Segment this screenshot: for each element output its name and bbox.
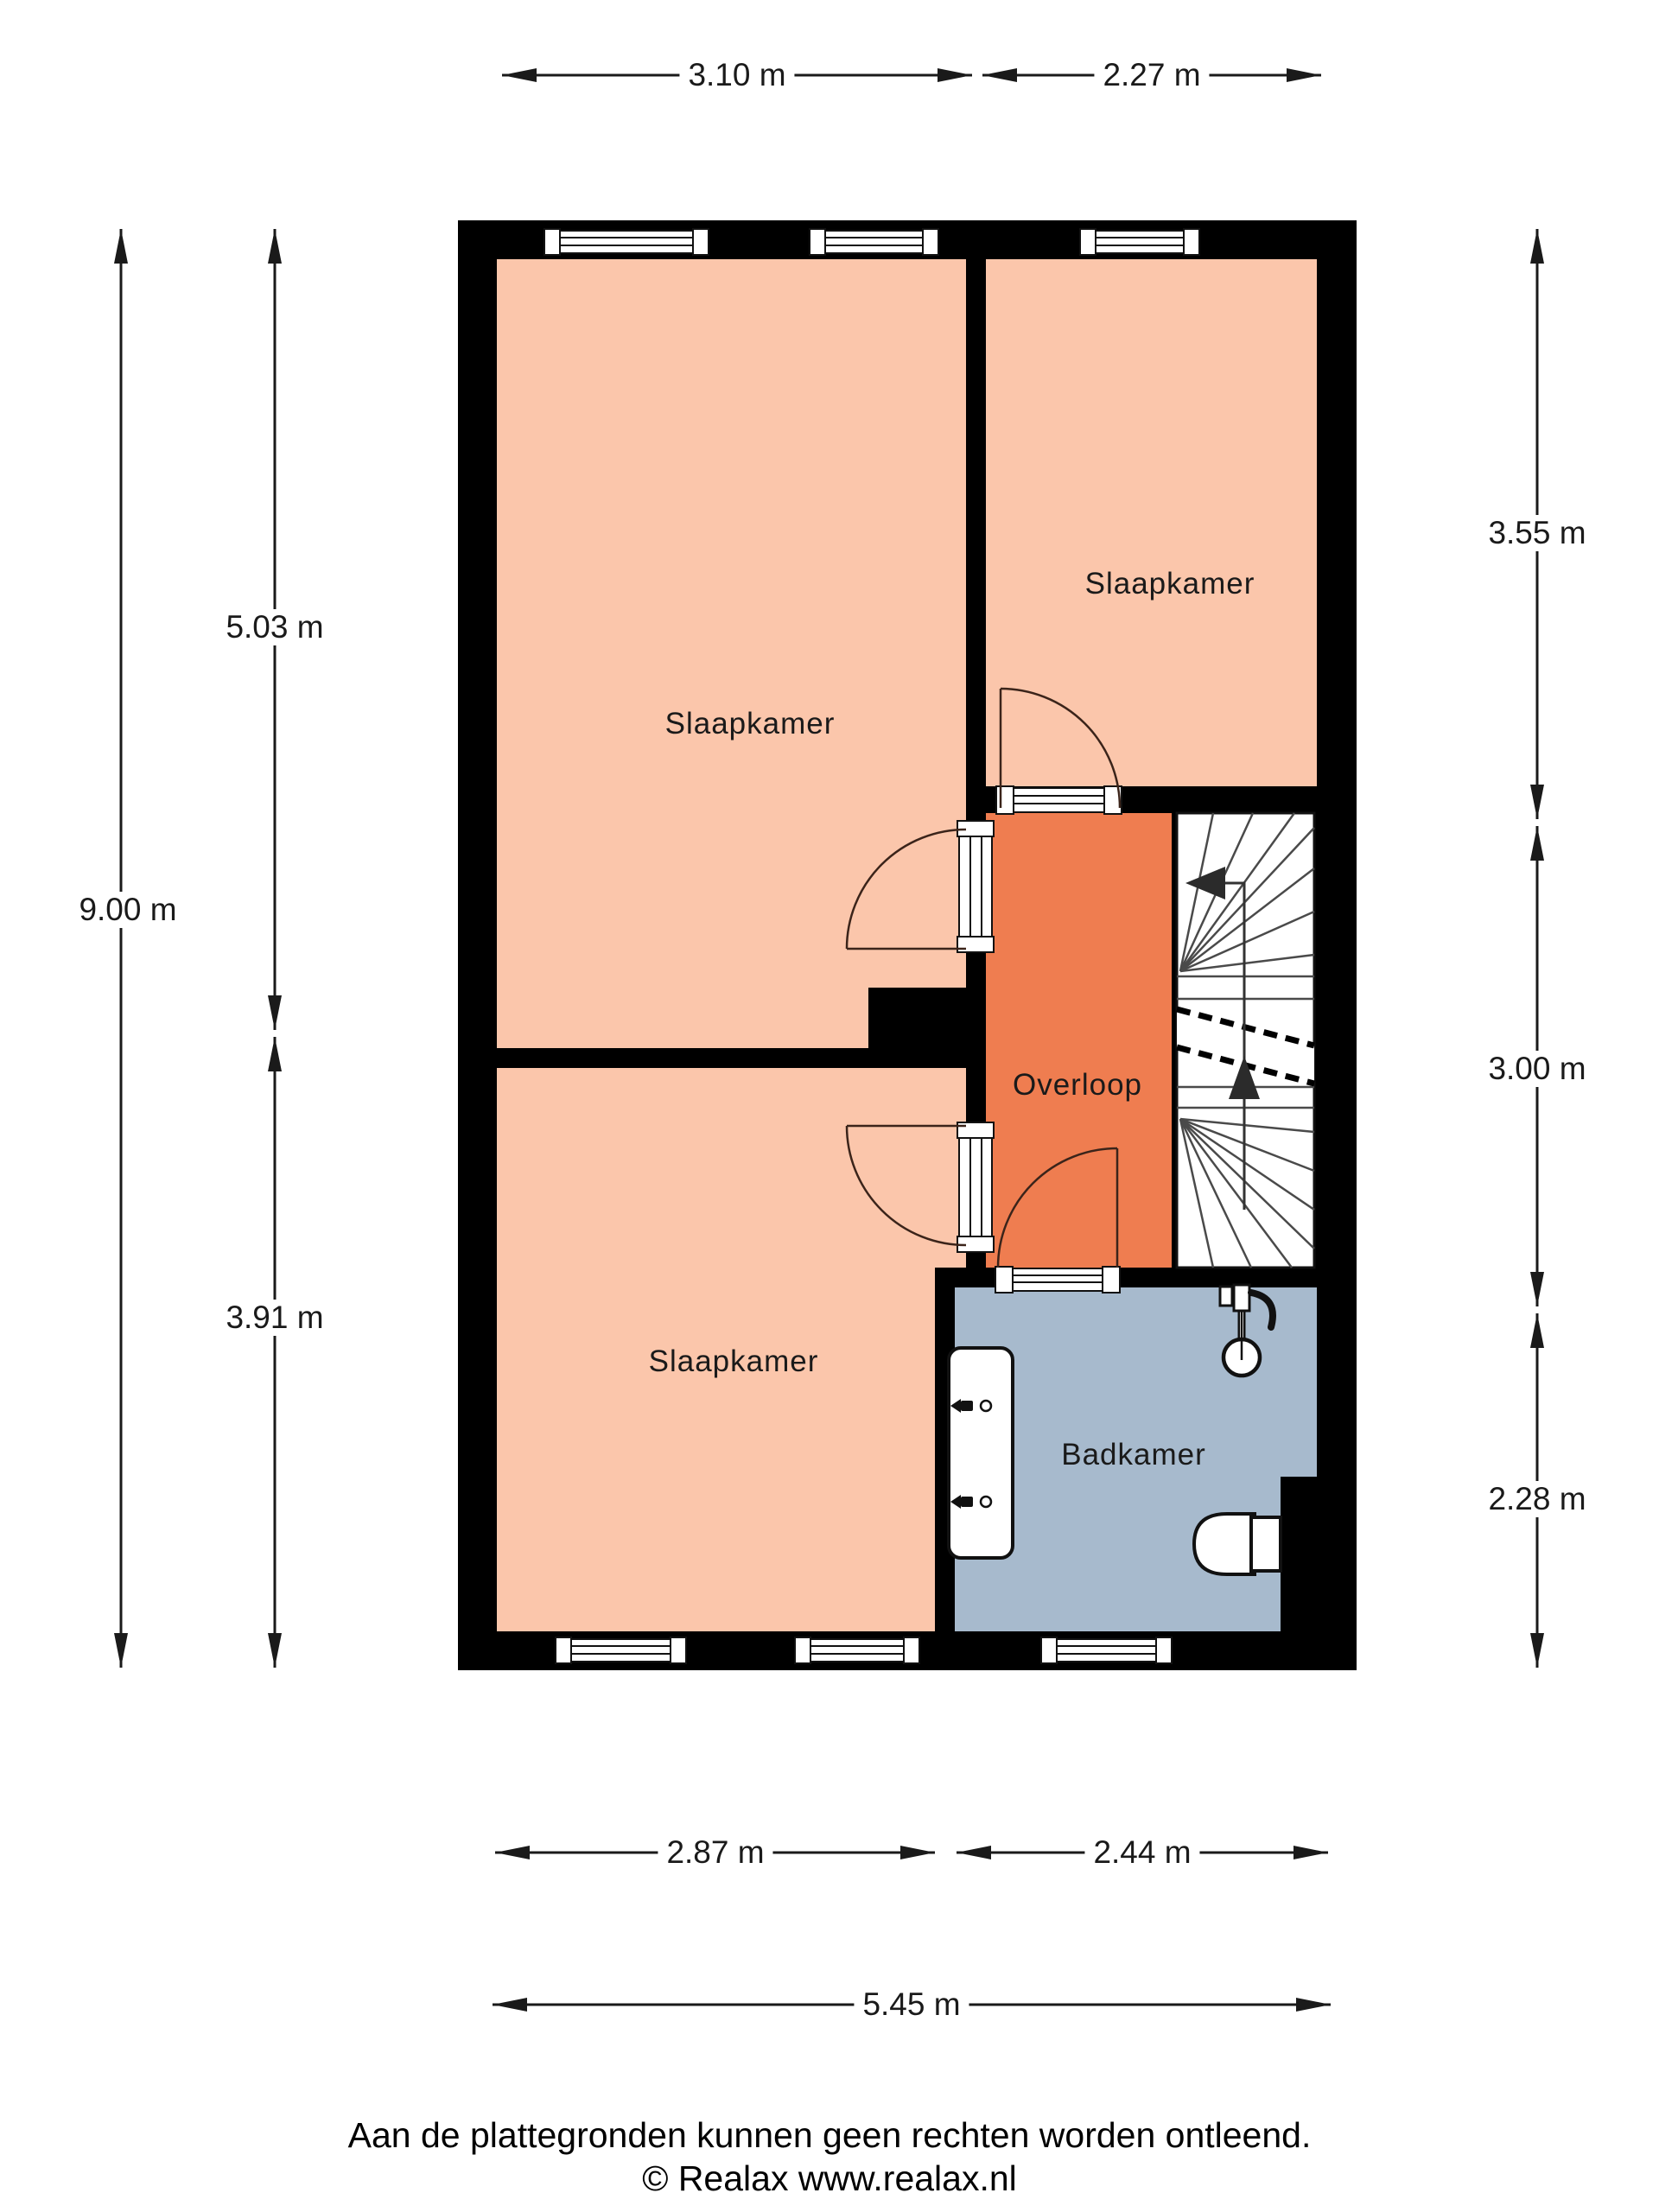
- dim-label-bottom-1: 2.87 m: [658, 1834, 772, 1871]
- door-frame: [957, 821, 994, 952]
- toilet-tank: [1251, 1517, 1281, 1571]
- wall-notch-left: [868, 988, 986, 1068]
- room-label-slaapkamer-tl: Slaapkamer: [665, 707, 836, 741]
- window: [795, 1637, 919, 1663]
- room-label-slaapkamer-bl: Slaapkamer: [649, 1344, 819, 1379]
- window: [1080, 229, 1199, 255]
- window: [1041, 1637, 1172, 1663]
- dim-label-top-2: 2.27 m: [1094, 57, 1209, 93]
- window: [810, 229, 938, 255]
- dim-label-bottom-2: 2.44 m: [1084, 1834, 1199, 1871]
- window: [544, 229, 709, 255]
- room-slaapkamer-tl-floor: [497, 259, 966, 1048]
- room-label-overloop: Overloop: [1013, 1068, 1142, 1103]
- dim-label-right-3: 2.28 m: [1479, 1481, 1594, 1517]
- door-frame: [957, 1122, 994, 1252]
- toilet-bowl: [1194, 1514, 1255, 1574]
- door-frame: [996, 786, 1122, 814]
- dim-label-left-inner-1: 5.03 m: [217, 609, 332, 645]
- room-overloop-floor: [986, 813, 1172, 1268]
- window: [556, 1637, 686, 1663]
- room-label-badkamer: Badkamer: [1061, 1438, 1206, 1472]
- footer-disclaimer: Aan de plattegronden kunnen geen rechten…: [0, 2115, 1659, 2156]
- dim-label-left-inner-2: 3.91 m: [217, 1300, 332, 1336]
- dim-label-right-1: 3.55 m: [1479, 515, 1594, 551]
- footer-copyright: © Realax www.realax.nl: [0, 2158, 1659, 2199]
- staircase: [1177, 813, 1314, 1268]
- toilet: [1194, 1514, 1281, 1574]
- floorplan-page: Slaapkamer Slaapkamer Slaapkamer Overloo…: [0, 0, 1659, 2212]
- door-frame: [995, 1267, 1120, 1293]
- dim-label-left-outer: 9.00 m: [70, 892, 185, 928]
- room-slaapkamer-tr-floor: [986, 259, 1317, 786]
- floorplan-svg: [0, 0, 1659, 2212]
- room-label-slaapkamer-tr: Slaapkamer: [1085, 567, 1255, 601]
- dim-label-bottom-total: 5.45 m: [854, 1986, 969, 2023]
- dim-label-top-1: 3.10 m: [679, 57, 794, 93]
- dim-label-right-2: 3.00 m: [1479, 1051, 1594, 1087]
- bathtub: [949, 1348, 1013, 1558]
